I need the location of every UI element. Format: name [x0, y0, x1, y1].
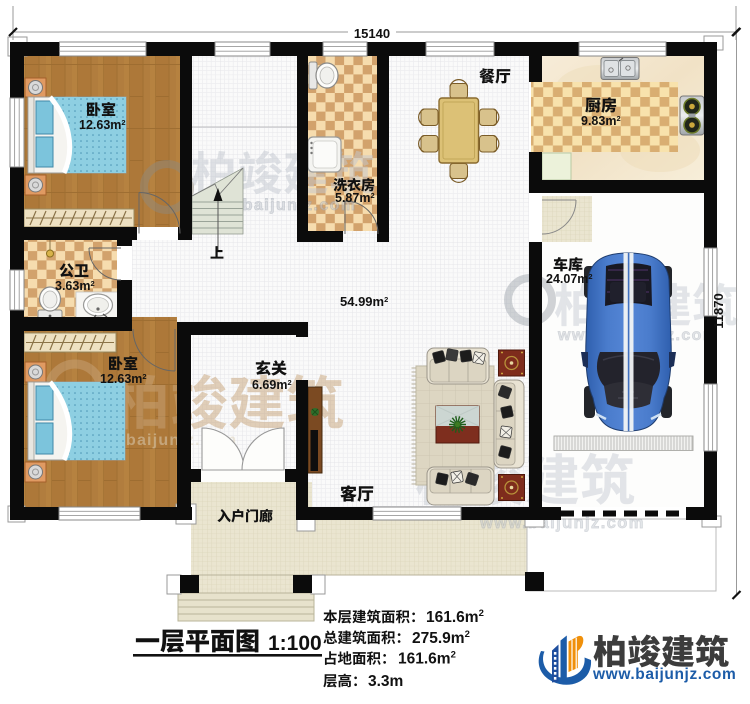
svg-text:9.83m2: 9.83m2 [581, 114, 621, 128]
svg-text:54.99m2: 54.99m2 [340, 294, 388, 309]
svg-text:161.6m2: 161.6m2 [426, 608, 484, 626]
svg-text:275.9m2: 275.9m2 [412, 629, 470, 647]
svg-text:12.63m2: 12.63m2 [79, 118, 126, 132]
svg-text:1:100: 1:100 [268, 632, 322, 655]
svg-text:15140: 15140 [354, 26, 390, 41]
svg-text:11870: 11870 [711, 293, 726, 328]
svg-text:3.63m2: 3.63m2 [55, 279, 95, 293]
svg-text:6.69m2: 6.69m2 [252, 378, 292, 392]
svg-text:24.07m2: 24.07m2 [546, 272, 593, 286]
svg-text:161.6m2: 161.6m2 [398, 650, 456, 668]
svg-text:5.87m2: 5.87m2 [335, 191, 375, 205]
svg-text:3.3m: 3.3m [368, 673, 403, 690]
svg-text:12.63m2: 12.63m2 [100, 372, 147, 386]
svg-text:www.baijunjz.com: www.baijunjz.com [592, 666, 736, 683]
